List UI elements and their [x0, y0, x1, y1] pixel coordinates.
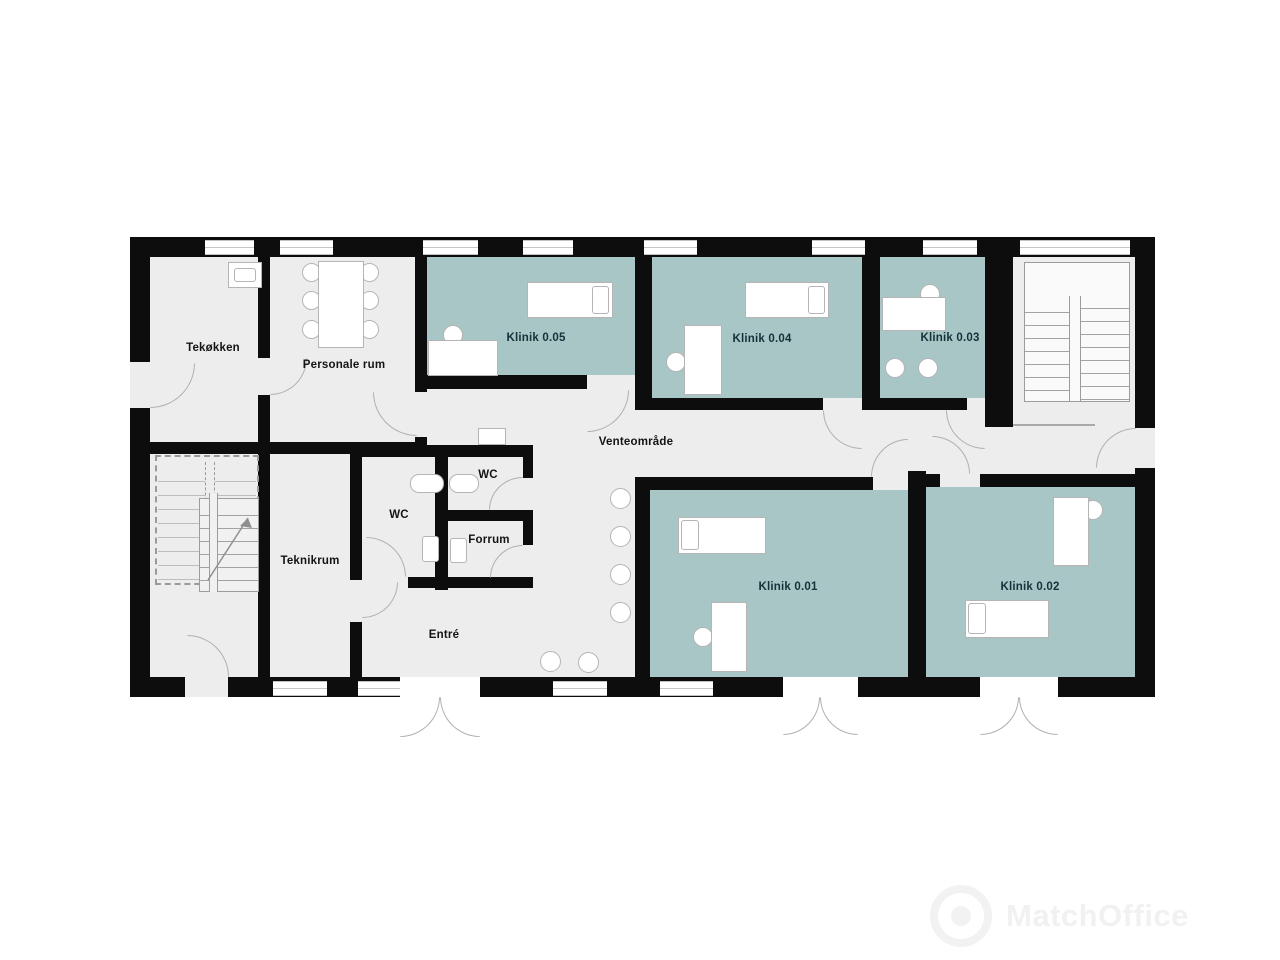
- room-label-klinik-0-01: Klinik 0.01: [758, 581, 817, 593]
- waiting-chair: [540, 651, 561, 672]
- wall-segment: [415, 375, 587, 389]
- chair: [666, 352, 686, 372]
- window: [812, 240, 865, 255]
- door-swing-arc: [820, 697, 858, 735]
- window: [358, 681, 400, 696]
- wall-segment: [980, 474, 1135, 487]
- room-label-teknikrum: Teknikrum: [280, 555, 339, 567]
- entrance-door-opening: [400, 677, 480, 697]
- window: [523, 240, 573, 255]
- window: [660, 681, 713, 696]
- window: [644, 240, 697, 255]
- waiting-chair: [610, 564, 631, 585]
- waiting-chair: [610, 488, 631, 509]
- door-opening-right: [1135, 428, 1155, 468]
- stool: [885, 358, 905, 378]
- entrance-door-swing: [440, 697, 480, 737]
- door-opening-bottom-left: [185, 677, 228, 697]
- desk: [684, 325, 722, 395]
- door-swing-arc: [1019, 697, 1058, 735]
- wall-segment: [635, 257, 652, 398]
- wall-segment: [523, 510, 533, 545]
- wall-segment: [415, 237, 427, 392]
- wall-segment: [408, 577, 533, 588]
- wall-segment: [523, 445, 533, 478]
- window: [280, 240, 333, 255]
- stairwell-boundary-line: [1013, 424, 1095, 426]
- bed-pillow: [592, 286, 609, 314]
- wall-segment: [862, 257, 880, 410]
- wall-segment: [985, 257, 1013, 427]
- bed-pillow: [681, 520, 699, 550]
- bed-pillow: [808, 286, 825, 314]
- room-label-klinik-0-03: Klinik 0.03: [920, 332, 979, 344]
- window: [205, 240, 254, 255]
- stair-direction-arrow: [196, 496, 262, 588]
- corridor-sink: [478, 428, 506, 445]
- room-label-klinik-0-04: Klinik 0.04: [732, 333, 791, 345]
- wall-segment: [448, 510, 523, 521]
- room-label-wc-left: WC: [389, 509, 409, 521]
- watermark-brand: MatchOffice: [1006, 898, 1189, 934]
- room-label-tekokken: Tekøkken: [186, 342, 240, 354]
- waiting-chair: [578, 652, 599, 673]
- room-label-venteomraade: Venteområde: [599, 436, 673, 448]
- wall-segment: [650, 477, 873, 490]
- watermark: MatchOffice: [930, 885, 1189, 947]
- washbasin: [450, 538, 467, 563]
- window: [923, 240, 977, 255]
- meeting-table: [318, 261, 364, 348]
- desk: [428, 340, 498, 376]
- room-label-personale-rum: Personale rum: [303, 359, 386, 371]
- wall-segment: [350, 622, 362, 677]
- stair-treads: [1081, 296, 1129, 400]
- room-label-klinik-0-05: Klinik 0.05: [506, 332, 565, 344]
- window: [423, 240, 478, 255]
- room-label-klinik-0-02: Klinik 0.02: [1000, 581, 1059, 593]
- wall-segment: [635, 477, 650, 697]
- room-label-wc-right: WC: [478, 469, 498, 481]
- door-opening-left: [130, 362, 150, 408]
- watermark-logo-icon: [930, 885, 992, 947]
- wall-segment: [880, 398, 967, 410]
- stair-treads: [1025, 300, 1071, 400]
- wall-segment: [258, 395, 270, 442]
- floor-plan-canvas: Tekøkken Personale rum Klinik 0.05 Klini…: [0, 0, 1280, 960]
- chair: [693, 627, 713, 647]
- door-swing-arc: [980, 697, 1019, 735]
- wall-segment: [350, 454, 362, 580]
- wall-exterior-left: [130, 237, 150, 697]
- wall-segment: [908, 471, 926, 697]
- window: [273, 681, 327, 696]
- entrance-door-swing: [400, 697, 440, 737]
- window-stairwell: [1020, 240, 1130, 255]
- wall-segment: [926, 474, 940, 487]
- desk: [882, 297, 946, 331]
- door-opening-klinik-0-02: [980, 677, 1058, 697]
- wall-segment: [635, 398, 823, 410]
- waiting-chair: [610, 602, 631, 623]
- waiting-chair: [610, 526, 631, 547]
- room-label-forrum: Forrum: [468, 534, 509, 546]
- wall-segment: [435, 445, 448, 590]
- window: [553, 681, 607, 696]
- desk: [1053, 497, 1089, 566]
- door-swing-arc: [783, 697, 820, 735]
- toilet: [410, 474, 444, 493]
- washbasin: [422, 536, 439, 562]
- bed-pillow: [968, 603, 986, 634]
- room-label-entre: Entré: [429, 629, 459, 641]
- stair-divider: [1069, 296, 1081, 401]
- door-opening-klinik-0-01: [783, 677, 858, 697]
- desk: [711, 602, 747, 672]
- kitchen-sink-basin: [234, 268, 256, 282]
- stool: [918, 358, 938, 378]
- toilet: [449, 474, 479, 493]
